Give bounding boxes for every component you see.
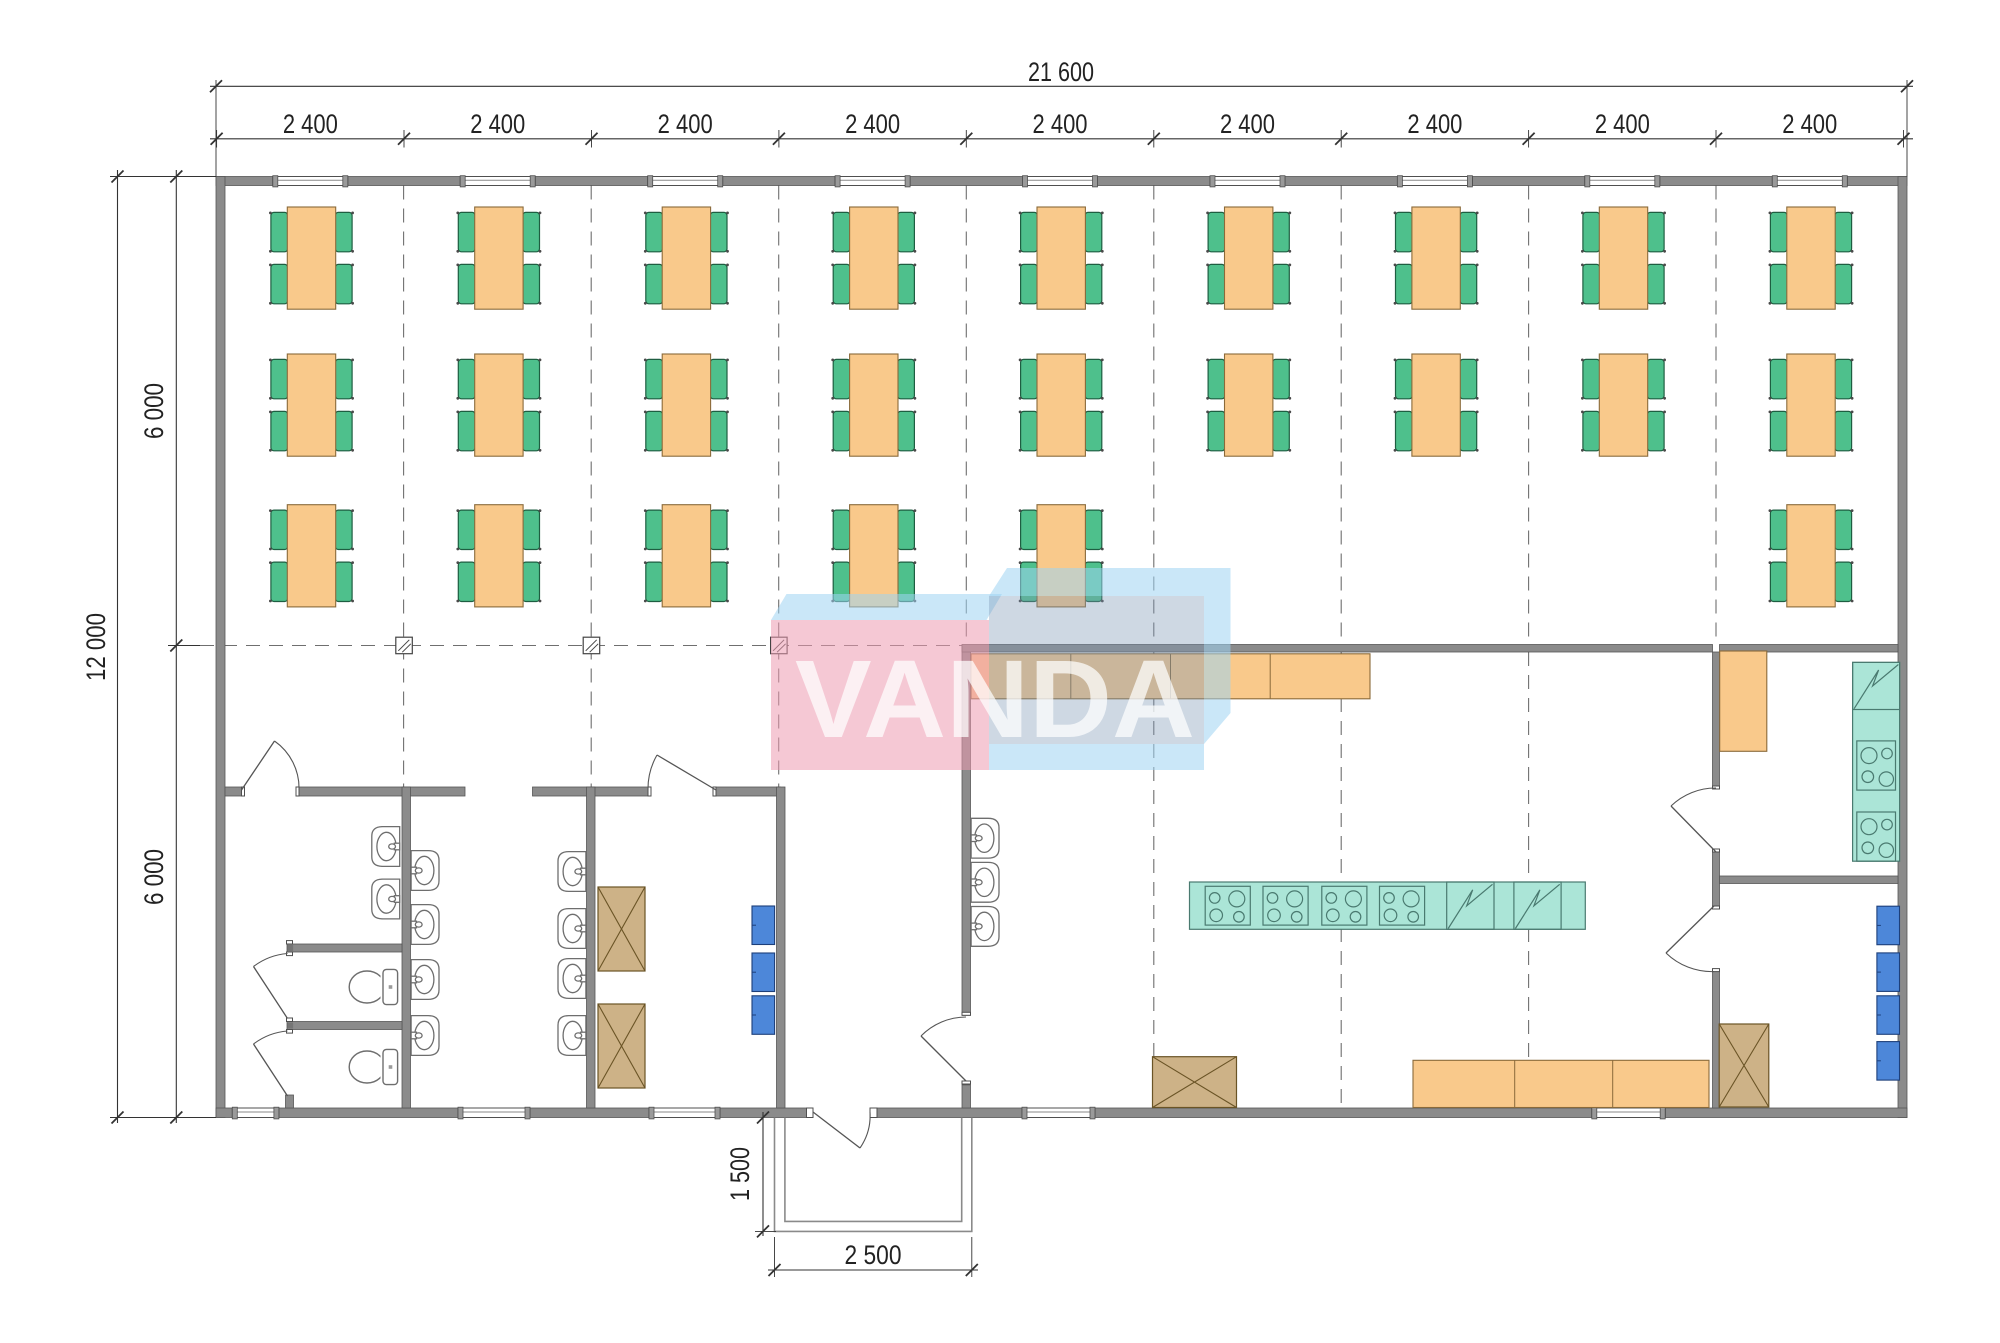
svg-text:2 400: 2 400 <box>1220 109 1275 139</box>
svg-text:2 400: 2 400 <box>283 109 338 139</box>
svg-text:21 600: 21 600 <box>1028 57 1094 87</box>
svg-text:6 000: 6 000 <box>139 383 169 439</box>
svg-text:2 400: 2 400 <box>1033 109 1088 139</box>
svg-text:2 400: 2 400 <box>470 109 525 139</box>
svg-text:2 400: 2 400 <box>1407 109 1462 139</box>
svg-text:2 400: 2 400 <box>1782 109 1837 139</box>
svg-text:VANDA: VANDA <box>795 638 1195 761</box>
svg-text:12 000: 12 000 <box>81 613 111 681</box>
svg-text:2 500: 2 500 <box>845 1240 902 1270</box>
svg-text:2 400: 2 400 <box>658 109 713 139</box>
svg-text:2 400: 2 400 <box>1595 109 1650 139</box>
svg-text:2 400: 2 400 <box>845 109 900 139</box>
svg-text:1 500: 1 500 <box>725 1147 755 1201</box>
svg-text:6 000: 6 000 <box>139 849 169 905</box>
